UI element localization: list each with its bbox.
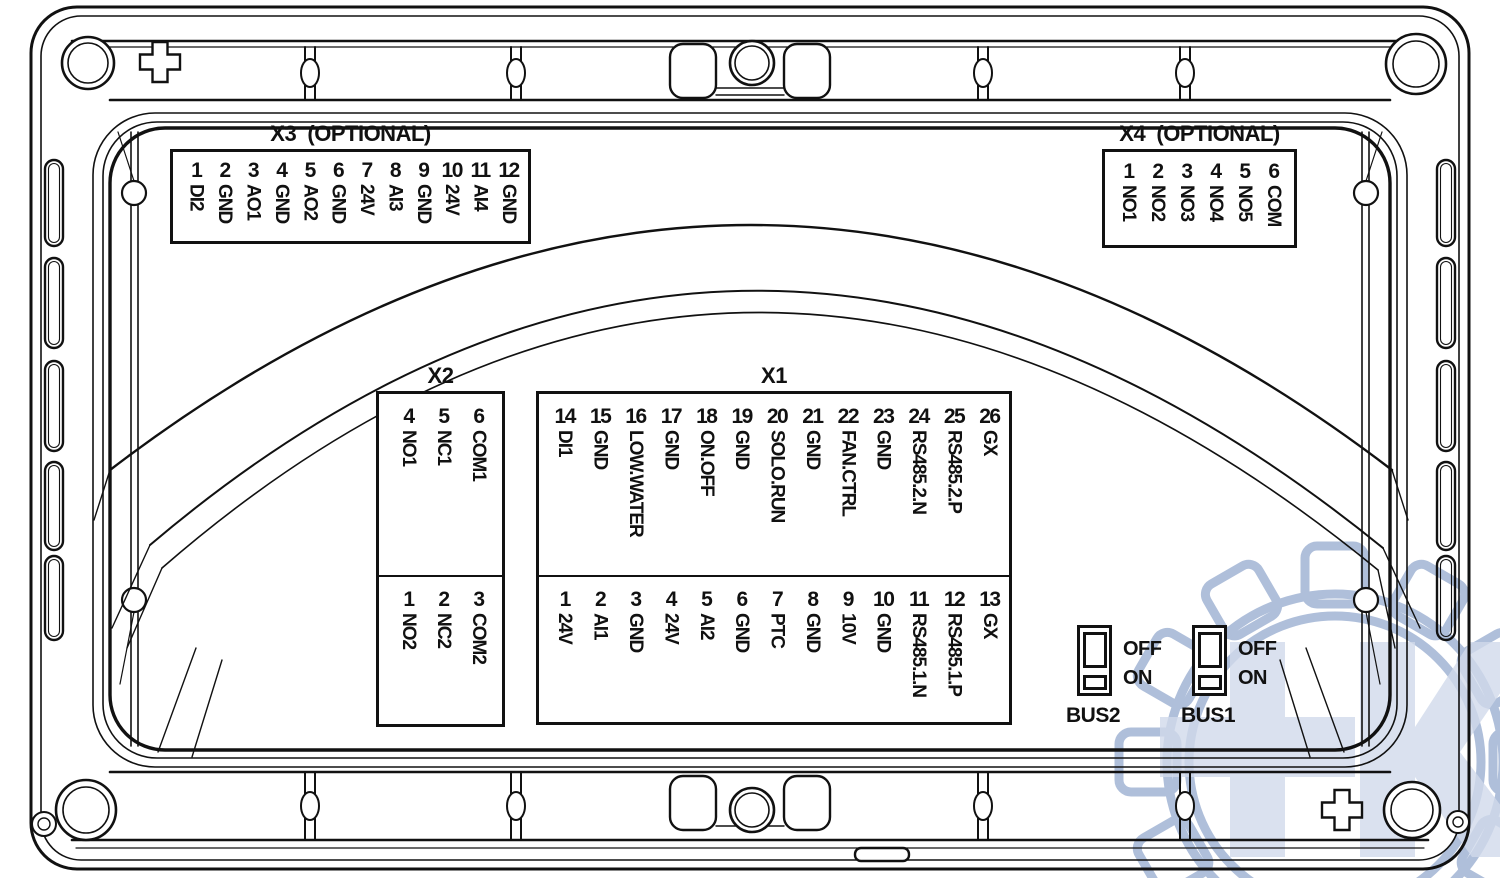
pin-number: 8 [390,160,400,181]
pin-label: RS485.2.P [944,430,963,513]
pin-label: NO3 [1177,185,1196,221]
pin-number: 2 [438,589,448,610]
pin-label: AI1 [591,613,610,640]
bus2-switch-slider [1083,632,1107,668]
pin-9: 9GND [409,160,437,223]
pin-number: 5 [305,160,315,181]
bus2-off-label: OFF [1123,639,1162,659]
pin-label: NO2 [1148,185,1167,221]
pin-18: 18ON.OFF [689,406,724,575]
pin-label: RS485.1.P [944,613,963,696]
cross-screw-top-left [140,42,180,82]
pin-number: 1 [1123,161,1133,182]
pin-number: 11 [909,589,928,610]
pin-label: GX [980,613,999,638]
pin-number: 13 [979,589,999,610]
bus2-switch-on-slot [1083,675,1107,690]
pin-number: 4 [1210,161,1220,182]
pin-number: 7 [361,160,371,181]
pin-6: 6COM [1259,161,1288,226]
pin-label: 24V [661,613,680,644]
pin-24: 24RS485.2.N [901,406,936,575]
pin-number: 3 [248,160,258,181]
pin-16: 16LOW.WATER [618,406,653,575]
pin-3: 3NO3 [1172,161,1201,226]
pin-label: NO1 [399,430,418,466]
connector-x2: X2 4NO15NC16COM1 1NO22NC23COM2 [376,364,505,727]
pin-number: 12 [944,589,964,610]
pin-3: 3GND [618,589,653,722]
pin-number: 2 [219,160,229,181]
pin-number: 23 [873,406,893,427]
pin-2: 2NC2 [426,589,461,724]
connector-x1-pins-top: 14DI115GND16LOW.WATER17GND18ON.OFF19GND2… [539,394,1009,575]
pin-label: AO2 [300,184,319,220]
pin-label: LOW.WATER [626,430,645,537]
connector-x2-pins-bottom: 1NO22NC23COM2 [379,575,502,724]
pin-number: 10 [442,160,462,181]
bus1-switch-on-slot [1198,675,1222,690]
connector-x3-pins: 1DI22GND3AO14GND5AO26GND724V8AI39GND1024… [173,152,528,223]
pin-label: RS485.1.N [909,613,928,697]
pin-label: DI2 [187,184,206,211]
pin-label: NC2 [434,613,453,648]
pin-4: 424V [653,589,688,722]
pin-10: 1024V [438,160,466,223]
pin-7: 724V [352,160,380,223]
pin-label: GND [732,613,751,652]
pin-label: AO1 [243,184,262,220]
connector-x4-title: X4 (OPTIONAL) [1102,122,1297,149]
connector-x1-pins-bottom: 124V2AI13GND424V5AI26GND7PTC8GND910V10GN… [539,575,1009,722]
pin-13: 13GX [972,589,1007,722]
pin-number: 5 [1239,161,1249,182]
bus2-on-label: ON [1123,668,1152,688]
pin-label: GND [732,430,751,469]
pin-number: 16 [625,406,645,427]
pin-number: 2 [1152,161,1162,182]
pin-17: 17GND [653,406,688,575]
connector-x2-title: X2 [376,364,505,391]
pin-label: COM2 [469,613,488,664]
pin-8: 8GND [795,589,830,722]
pin-14: 14DI1 [547,406,582,575]
pin-number: 9 [418,160,428,181]
pin-label: 24V [442,184,461,215]
pin-number: 3 [473,589,483,610]
bus1-name-label: BUS1 [1181,705,1235,726]
pin-label: 10V [838,613,857,644]
pin-21: 21GND [795,406,830,575]
pin-label: PTC [768,613,787,648]
pin-number: 25 [944,406,964,427]
pin-1: 124V [547,589,582,722]
pin-label: GND [661,430,680,469]
pin-number: 17 [661,406,681,427]
connector-x4: X4 (OPTIONAL) 1NO12NO23NO34NO45NO56COM [1102,122,1297,248]
connector-x4-box: 1NO12NO23NO34NO45NO56COM [1102,149,1297,248]
pin-label: AI2 [697,613,716,640]
pin-number: 19 [731,406,751,427]
pin-number: 18 [696,406,716,427]
connector-x4-pins: 1NO12NO23NO34NO45NO56COM [1105,152,1294,226]
pin-5: 5NC1 [426,406,461,575]
pin-6: 6GND [724,589,759,722]
pin-number: 6 [473,406,483,427]
pin-label: ON.OFF [697,430,716,496]
bus2-name-label: BUS2 [1066,705,1120,726]
pin-number: 5 [701,589,711,610]
pin-19: 19GND [724,406,759,575]
pin-label: AI4 [471,184,490,211]
pin-number: 7 [772,589,782,610]
pin-8: 8AI3 [381,160,409,223]
pin-15: 15GND [582,406,617,575]
pin-number: 5 [438,406,448,427]
pin-2: 2AI1 [582,589,617,722]
pin-2: 2GND [210,160,238,223]
pin-3: 3COM2 [461,589,496,724]
pin-label: 24V [555,613,574,644]
pin-number: 9 [843,589,853,610]
pin-number: 3 [1181,161,1191,182]
pin-4: 4NO4 [1201,161,1230,226]
pin-number: 1 [403,589,413,610]
pin-label: GND [874,613,893,652]
pin-number: 1 [560,589,570,610]
watermark-gear-logo [1119,546,1500,878]
pin-5: 5AI2 [689,589,724,722]
connector-x1-title: X1 [536,364,1012,391]
pin-number: 12 [498,160,518,181]
pin-20: 20SOLO.RUN [759,406,794,575]
pin-6: 6GND [324,160,352,223]
pin-label: GND [803,613,822,652]
pin-number: 14 [555,406,575,427]
bus1-switch-slider [1198,632,1222,668]
pin-label: AI3 [385,184,404,211]
pin-1: 1DI2 [182,160,210,223]
bottom-center-screw-hole [730,788,774,832]
connector-x2-box: 4NO15NC16COM1 1NO22NC23COM2 [376,391,505,727]
pin-23: 23GND [866,406,901,575]
connector-x3: X3 (OPTIONAL) 1DI22GND3AO14GND5AO26GND72… [170,122,531,244]
pin-number: 10 [873,589,893,610]
bottom-center-tab [855,848,909,861]
pin-label: GND [874,430,893,469]
pin-7: 7PTC [759,589,794,722]
pin-number: 26 [979,406,999,427]
connector-x3-box: 1DI22GND3AO14GND5AO26GND724V8AI39GND1024… [170,149,531,244]
pin-label: COM [1264,185,1283,226]
pin-number: 3 [630,589,640,610]
pin-label: NO2 [399,613,418,649]
pin-26: 26GX [972,406,1007,575]
pin-label: RS485.2.N [909,430,928,514]
pin-label: GND [329,184,348,223]
pin-number: 6 [737,589,747,610]
pin-label: NO4 [1206,185,1225,221]
pin-label: GND [272,184,291,223]
pin-label: NO1 [1119,185,1138,221]
pin-number: 4 [276,160,286,181]
pin-label: GND [215,184,234,223]
pin-label: SOLO.RUN [768,430,787,522]
pin-number: 20 [767,406,787,427]
pin-label: GND [803,430,822,469]
pin-label: FAN.CTRL [838,430,857,516]
cross-screw-bottom-right [1322,790,1362,830]
pin-number: 11 [471,160,490,181]
pin-6: 6COM1 [461,406,496,575]
pin-2: 2NO2 [1143,161,1172,226]
pin-number: 8 [807,589,817,610]
pin-11: 11AI4 [466,160,494,223]
pin-label: NC1 [434,430,453,465]
pin-label: GND [414,184,433,223]
top-center-screw-hole [730,41,774,85]
pin-label: GND [626,613,645,652]
connector-x1: X1 14DI115GND16LOW.WATER17GND18ON.OFF19G… [536,364,1012,725]
pin-label: GND [591,430,610,469]
pin-22: 22FAN.CTRL [830,406,865,575]
pin-11: 11RS485.1.N [901,589,936,722]
pin-label: COM1 [469,430,488,481]
connector-x3-title: X3 (OPTIONAL) [170,122,531,149]
connector-x1-box: 14DI115GND16LOW.WATER17GND18ON.OFF19GND2… [536,391,1012,725]
pin-12: 12RS485.1.P [936,589,971,722]
pin-1: 1NO2 [391,589,426,724]
pin-number: 4 [666,589,676,610]
pin-3: 3AO1 [239,160,267,223]
pin-number: 21 [802,406,822,427]
pin-label: 24V [357,184,376,215]
pin-4: 4GND [267,160,295,223]
pin-number: 1 [191,160,201,181]
pin-number: 24 [908,406,928,427]
pin-10: 10GND [866,589,901,722]
pin-5: 5AO2 [296,160,324,223]
pin-label: DI1 [555,430,574,457]
pin-number: 6 [333,160,343,181]
pin-1: 1NO1 [1114,161,1143,226]
bus1-on-label: ON [1238,668,1267,688]
bus1-off-label: OFF [1238,639,1277,659]
pin-25: 25RS485.2.P [936,406,971,575]
pin-label: NO5 [1235,185,1254,221]
pin-label: GX [980,430,999,455]
pin-number: 4 [403,406,413,427]
pin-number: 15 [590,406,610,427]
pin-5: 5NO5 [1230,161,1259,226]
pin-number: 22 [838,406,858,427]
pin-label: GND [499,184,518,223]
connector-x2-pins-top: 4NO15NC16COM1 [379,394,502,575]
pin-4: 4NO1 [391,406,426,575]
pin-12: 12GND [494,160,522,223]
pin-number: 6 [1268,161,1278,182]
terminal-pinout-diagram: X3 (OPTIONAL) 1DI22GND3AO14GND5AO26GND72… [0,0,1500,878]
pin-9: 910V [830,589,865,722]
pin-number: 2 [595,589,605,610]
